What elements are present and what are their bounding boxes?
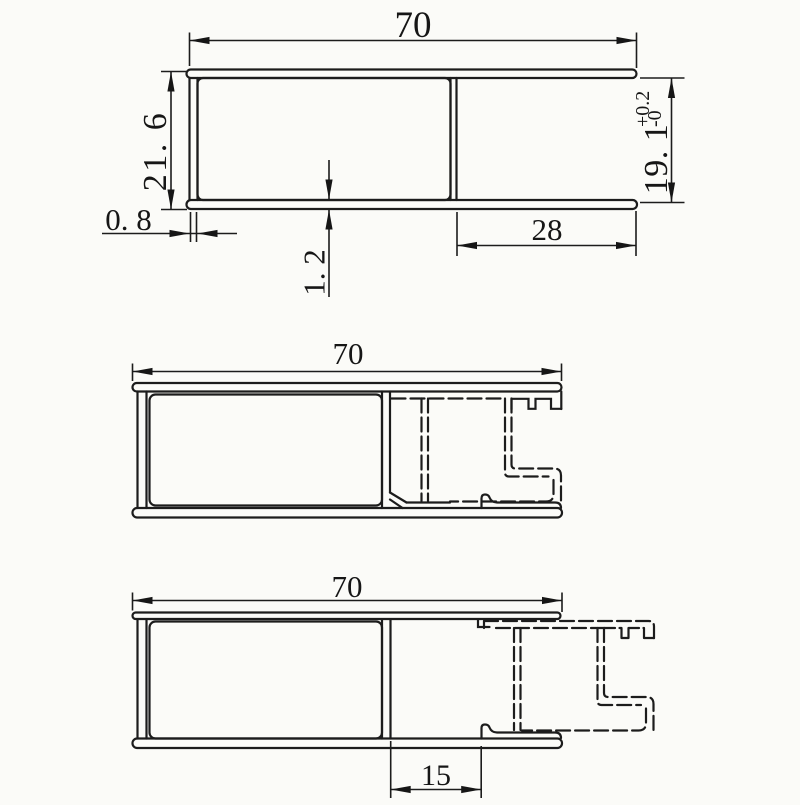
svg-text:70: 70: [333, 336, 364, 371]
svg-text:28: 28: [532, 212, 563, 247]
svg-text:1. 2: 1. 2: [297, 249, 332, 296]
svg-text:-0: -0: [644, 110, 666, 127]
svg-text:70: 70: [395, 5, 432, 46]
svg-text:70: 70: [332, 569, 363, 604]
svg-text:0. 8: 0. 8: [105, 202, 152, 237]
svg-text:19. 1: 19. 1: [638, 124, 675, 195]
svg-text:15: 15: [421, 759, 451, 792]
svg-text:21. 6: 21. 6: [137, 111, 174, 192]
